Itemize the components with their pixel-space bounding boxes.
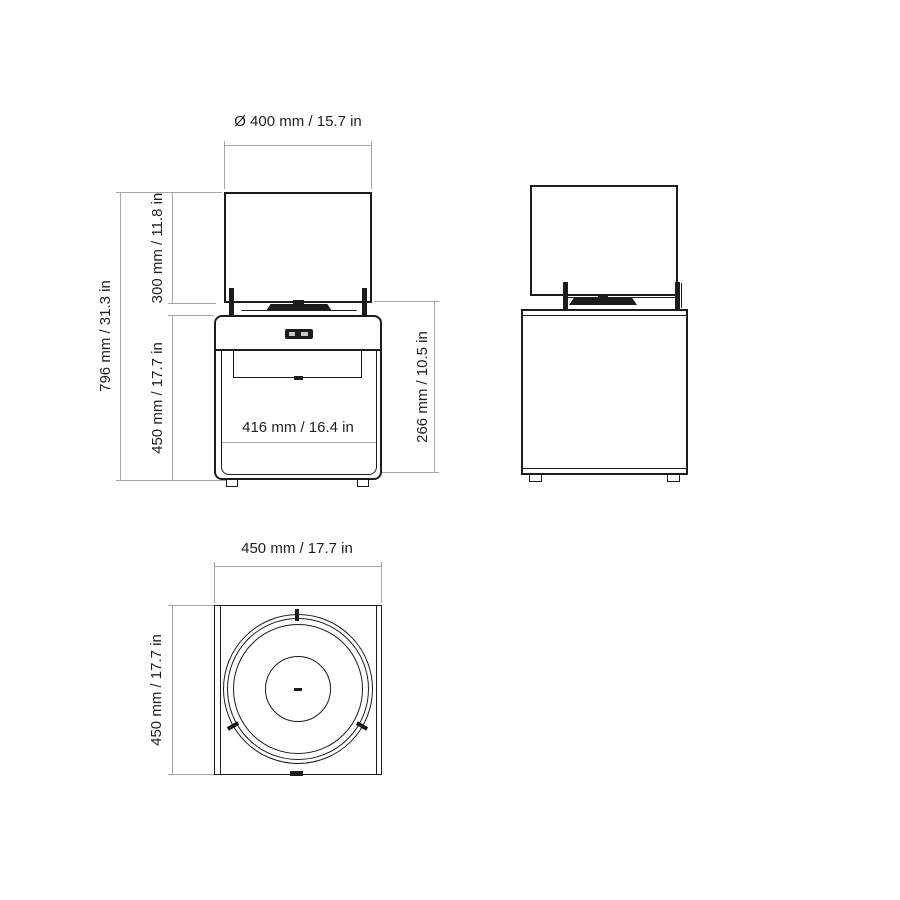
dim-label-inner-width: 416 mm / 16.4 in	[214, 420, 382, 436]
dimension-line	[172, 192, 173, 303]
screen-clip-support	[681, 283, 682, 308]
extension-line	[168, 774, 214, 775]
screen-clip	[229, 288, 234, 315]
dimension-line	[224, 145, 372, 146]
dim-label-diameter: Ø 400 mm / 15.7 in	[198, 114, 398, 130]
extension-line	[116, 192, 222, 193]
extension-line	[224, 146, 225, 189]
extension-line	[378, 472, 438, 473]
ring-clip	[295, 609, 299, 621]
burner-center-mark	[294, 688, 302, 691]
side-panel-line	[376, 606, 377, 774]
extension-line	[381, 567, 382, 603]
burner-plate	[567, 297, 675, 298]
dimension-line	[172, 605, 173, 775]
dimension-line	[222, 442, 376, 443]
dimension-line	[434, 301, 435, 472]
burner-tray	[266, 304, 332, 311]
extension-line	[374, 301, 438, 302]
side-panel-line	[220, 606, 221, 774]
extension-line	[116, 480, 226, 481]
firebox-latch	[294, 376, 303, 380]
dimension-line	[120, 192, 121, 480]
glass-screen	[530, 185, 678, 296]
body-bottom-seam-line	[523, 468, 686, 469]
glass-screen	[224, 192, 372, 303]
edge-tab	[290, 771, 303, 776]
foot	[667, 475, 680, 482]
screen-clip	[675, 282, 680, 309]
dimension-drawing: Ø 400 mm / 15.7 in 796 mm / 31.3 in 300 …	[0, 0, 900, 900]
foot	[529, 475, 542, 482]
control-button	[289, 332, 295, 336]
body-top-seam-line	[523, 315, 686, 316]
dim-label-firebox-height: 266 mm / 10.5 in	[415, 287, 431, 487]
dim-label-total-height: 796 mm / 31.3 in	[98, 236, 114, 436]
extension-line	[168, 303, 216, 304]
foot	[226, 480, 238, 487]
dimension-line	[172, 315, 173, 480]
dimension-line	[214, 566, 382, 567]
dim-label-top-width: 450 mm / 17.7 in	[197, 541, 397, 557]
extension-line	[168, 605, 214, 606]
extension-line	[214, 567, 215, 603]
dim-label-base-height: 450 mm / 17.7 in	[150, 298, 166, 498]
foot	[357, 480, 369, 487]
body	[521, 309, 688, 475]
extension-line	[371, 146, 372, 189]
extension-line	[168, 315, 214, 316]
dim-label-top-depth: 450 mm / 17.7 in	[149, 590, 165, 790]
burner-tray	[569, 298, 637, 305]
firebox-opening	[233, 350, 362, 378]
screen-clip	[563, 282, 568, 309]
control-button	[301, 332, 308, 336]
screen-clip	[362, 288, 367, 315]
